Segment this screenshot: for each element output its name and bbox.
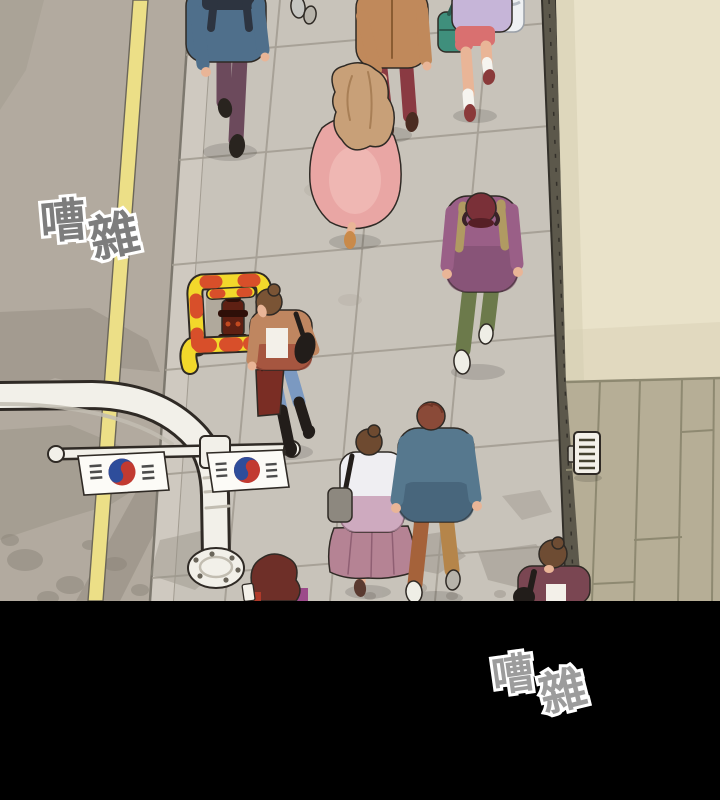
street-scene-panel — [0, 0, 720, 800]
wooden-deck — [566, 378, 720, 601]
korean-flag-right — [207, 450, 289, 492]
webtoon-page: 嘈嘈雜雜 嘈嘈雜雜 — [0, 0, 720, 800]
building-wall — [556, 0, 720, 382]
letterbox — [0, 601, 720, 800]
korean-flag-left — [78, 452, 169, 495]
lamp-base — [188, 548, 244, 588]
